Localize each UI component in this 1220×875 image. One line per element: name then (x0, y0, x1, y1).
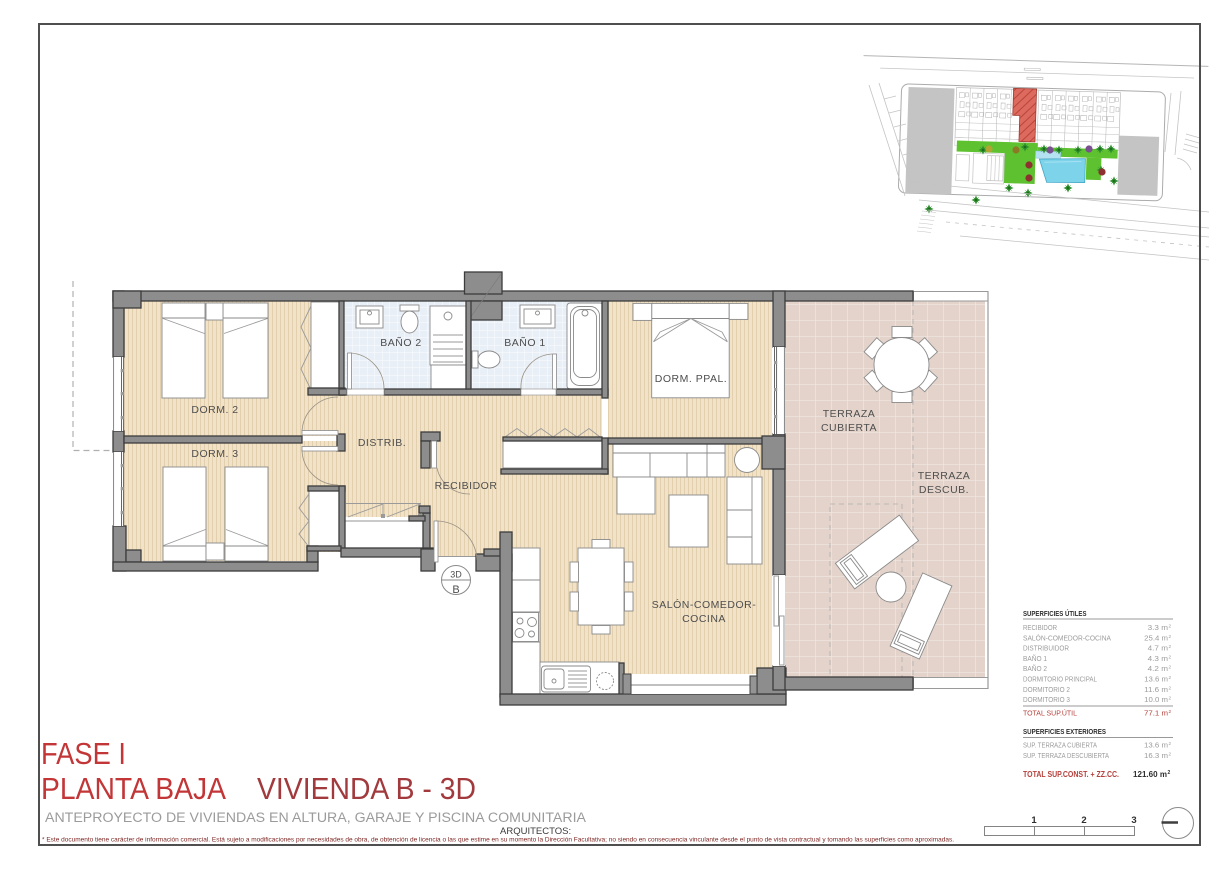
svg-text:2: 2 (1169, 696, 1172, 701)
svg-text:10.0 m: 10.0 m (1144, 697, 1168, 704)
svg-text:DISTRIB.: DISTRIB. (358, 437, 406, 449)
svg-text:PLANTA BAJA: PLANTA BAJA (41, 771, 226, 806)
svg-text:TERRAZA: TERRAZA (823, 408, 876, 420)
svg-text:BAÑO 1: BAÑO 1 (504, 336, 546, 349)
svg-text:RECIBIDOR: RECIBIDOR (1023, 625, 1057, 632)
svg-text:FASE I: FASE I (41, 736, 126, 771)
svg-text:25.4 m: 25.4 m (1144, 635, 1168, 642)
svg-text:DISTRIBUIDOR: DISTRIBUIDOR (1023, 646, 1069, 653)
svg-text:TOTAL SUP.CONST. + ZZ.CC.: TOTAL SUP.CONST. + ZZ.CC. (1023, 770, 1119, 779)
svg-text:13.6 m: 13.6 m (1144, 743, 1168, 750)
svg-text:2: 2 (1168, 770, 1171, 776)
svg-text:B: B (452, 584, 459, 596)
svg-text:4.3 m: 4.3 m (1148, 656, 1169, 663)
svg-text:2: 2 (1169, 751, 1172, 756)
svg-text:1: 1 (1031, 815, 1037, 826)
svg-text:SALÓN-COMEDOR-: SALÓN-COMEDOR- (652, 598, 756, 611)
svg-text:3: 3 (1131, 815, 1136, 826)
svg-text:DORM. 3: DORM. 3 (191, 448, 238, 460)
svg-text:DORMITORIO 3: DORMITORIO 3 (1023, 697, 1070, 704)
svg-text:DORM. PPAL.: DORM. PPAL. (655, 373, 727, 385)
svg-text:13.6 m: 13.6 m (1144, 677, 1168, 684)
svg-text:3D: 3D (450, 570, 462, 580)
svg-text:SUP. TERRAZA DESCUBIERTA: SUP. TERRAZA DESCUBIERTA (1023, 753, 1109, 760)
svg-text:BAÑO 2: BAÑO 2 (380, 336, 422, 349)
svg-text:SUPERFICIES ÚTILES: SUPERFICIES ÚTILES (1023, 609, 1087, 618)
svg-text:CUBIERTA: CUBIERTA (821, 422, 877, 434)
svg-text:COCINA: COCINA (682, 613, 726, 625)
svg-text:DORMITORIO PRINCIPAL: DORMITORIO PRINCIPAL (1023, 677, 1097, 684)
svg-text:* Este documento tiene carácte: * Este documento tiene carácter de infor… (42, 837, 954, 844)
svg-text:16.3 m: 16.3 m (1144, 753, 1168, 760)
svg-text:2: 2 (1081, 815, 1086, 826)
svg-text:BAÑO 2: BAÑO 2 (1023, 664, 1047, 673)
svg-text:2: 2 (1169, 654, 1172, 659)
svg-text:2: 2 (1169, 665, 1172, 670)
svg-text:ANTEPROYECTO DE VIVIENDAS EN A: ANTEPROYECTO DE VIVIENDAS EN ALTURA, GAR… (45, 810, 586, 825)
svg-text:ARQUITECTOS:: ARQUITECTOS: (500, 826, 571, 837)
svg-text:DORM. 2: DORM. 2 (191, 404, 238, 416)
svg-text:2: 2 (1169, 624, 1172, 629)
svg-text:DESCUB.: DESCUB. (919, 484, 969, 496)
svg-text:3.3 m: 3.3 m (1148, 625, 1169, 632)
svg-text:2: 2 (1169, 685, 1172, 690)
svg-text:SALÓN-COMEDOR-COCINA: SALÓN-COMEDOR-COCINA (1023, 633, 1111, 642)
svg-text:11.6 m: 11.6 m (1144, 687, 1168, 694)
svg-text:RECIBIDOR: RECIBIDOR (435, 480, 498, 492)
svg-text:TERRAZA: TERRAZA (918, 470, 971, 482)
svg-text:2: 2 (1169, 709, 1172, 714)
svg-text:4.2 m: 4.2 m (1148, 666, 1169, 673)
svg-text:SUPERFICIES EXTERIORES: SUPERFICIES EXTERIORES (1023, 727, 1106, 736)
svg-text:4.7 m: 4.7 m (1148, 646, 1169, 653)
svg-text:BAÑO 1: BAÑO 1 (1023, 654, 1047, 663)
svg-text:2: 2 (1169, 644, 1172, 649)
svg-text:2: 2 (1169, 741, 1172, 746)
svg-text:121.60 m: 121.60 m (1133, 770, 1167, 779)
svg-text:TOTAL SUP.ÚTIL: TOTAL SUP.ÚTIL (1023, 709, 1077, 718)
svg-text:SUP. TERRAZA CUBIERTA: SUP. TERRAZA CUBIERTA (1023, 743, 1097, 750)
svg-text:2: 2 (1169, 675, 1172, 680)
svg-text:VIVIENDA B - 3D: VIVIENDA B - 3D (257, 771, 476, 806)
svg-text:DORMITORIO 2: DORMITORIO 2 (1023, 687, 1070, 694)
svg-text:2: 2 (1169, 634, 1172, 639)
svg-text:77.1 m: 77.1 m (1144, 711, 1168, 718)
